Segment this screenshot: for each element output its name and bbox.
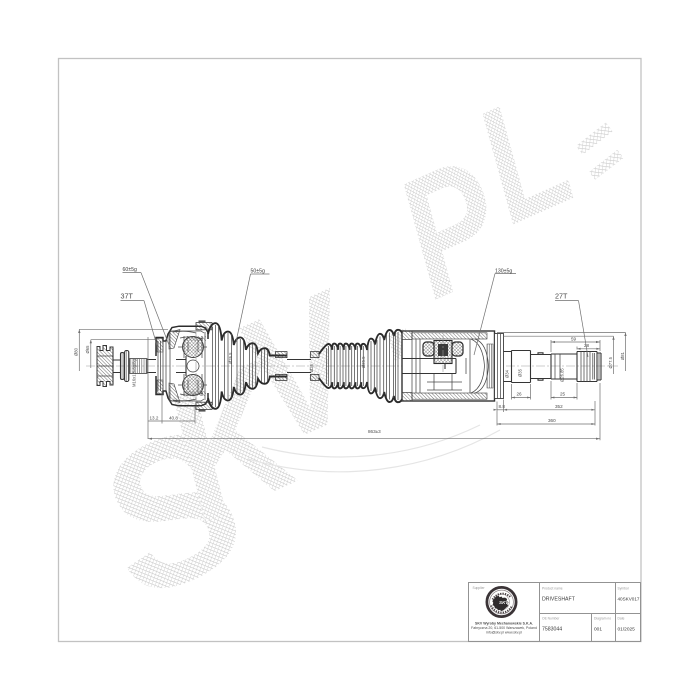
svg-text:Symbol: Symbol [618, 587, 629, 591]
svg-text:352: 352 [555, 404, 563, 409]
svg-text:Date: Date [618, 617, 625, 621]
svg-text:Ø77.5: Ø77.5 [608, 356, 613, 368]
svg-text:01/2025: 01/2025 [618, 627, 636, 633]
svg-text:13.2: 13.2 [150, 415, 159, 420]
svg-text:SKV: SKV [499, 600, 509, 605]
svg-text:001: 001 [594, 627, 602, 633]
svg-text:Fabryczna 20, 61-500 Warszawek: Fabryczna 20, 61-500 Warszawek, Poland [471, 626, 537, 630]
svg-text:27T: 27T [555, 292, 568, 301]
svg-text:Ø81: Ø81 [620, 351, 625, 360]
svg-text:50±5g: 50±5g [251, 268, 266, 274]
svg-text:DRIVESHAFT: DRIVESHAFT [542, 597, 576, 603]
svg-text:Ø26: Ø26 [309, 363, 314, 372]
svg-text:360: 360 [548, 418, 556, 423]
svg-text:OE Number: OE Number [542, 617, 560, 621]
svg-text:59: 59 [571, 336, 577, 341]
svg-text:25: 25 [560, 392, 566, 397]
svg-text:Ø35: Ø35 [518, 368, 523, 377]
svg-text:info@skv.pl www.skv.pl: info@skv.pl www.skv.pl [486, 631, 522, 635]
svg-text:Ø26.85: Ø26.85 [560, 368, 565, 382]
svg-text:M16x1.5-6g/6g: M16x1.5-6g/6g [132, 358, 137, 387]
svg-text:7583044: 7583044 [542, 627, 562, 633]
svg-text:Diagram no: Diagram no [594, 617, 611, 621]
svg-text:Supplier: Supplier [473, 586, 486, 590]
svg-text:863±3: 863±3 [368, 429, 381, 434]
svg-text:40SKV017: 40SKV017 [618, 597, 640, 602]
svg-text:SKV Wyroby Mechanowskie S.K.A.: SKV Wyroby Mechanowskie S.K.A. [475, 622, 533, 626]
svg-text:37T: 37T [121, 292, 134, 301]
svg-text:Ø26.5: Ø26.5 [228, 352, 233, 364]
svg-text:40.8: 40.8 [169, 415, 178, 420]
svg-text:60±5g: 60±5g [123, 267, 138, 273]
svg-text:Ø34: Ø34 [505, 369, 510, 378]
svg-text:8.8: 8.8 [499, 404, 506, 409]
svg-text:Product name: Product name [542, 587, 563, 591]
svg-text:Ø25.5: Ø25.5 [361, 356, 366, 368]
svg-text:28: 28 [584, 343, 590, 348]
svg-text:Ø65: Ø65 [85, 345, 90, 354]
svg-text:26: 26 [517, 392, 523, 397]
svg-text:Ø80: Ø80 [74, 347, 79, 356]
